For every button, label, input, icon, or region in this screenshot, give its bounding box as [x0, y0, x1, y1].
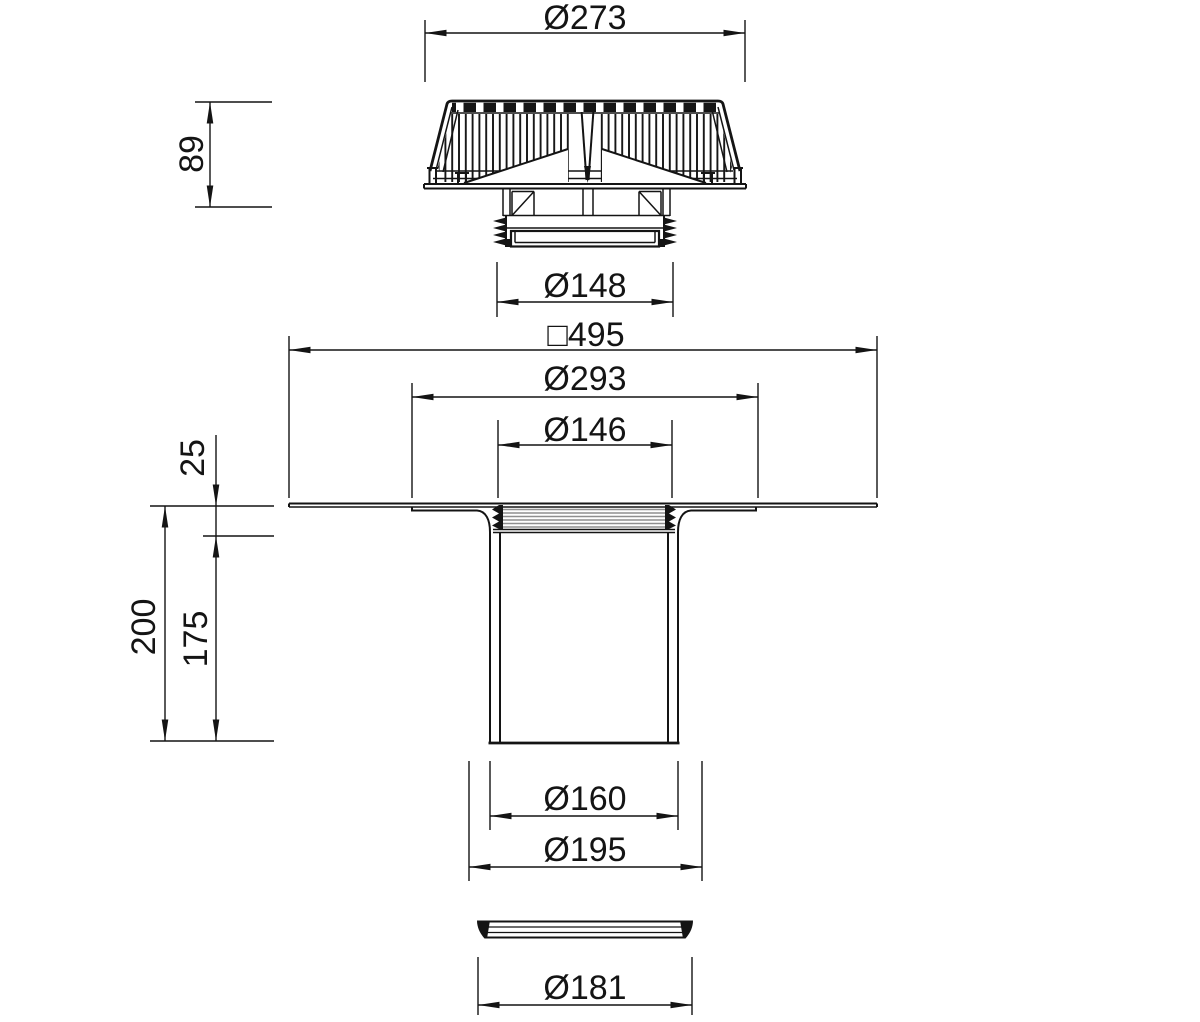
dim-label-grate-diameter: Ø273 — [543, 0, 626, 37]
dim-label-collar-diameter: Ø195 — [543, 831, 626, 869]
strainer-thread-connector — [493, 216, 677, 247]
dim-label-throat-diameter: Ø146 — [543, 411, 626, 449]
dimension-flange-height: 25 — [150, 435, 274, 536]
dim-label-seal-diameter: Ø181 — [543, 969, 626, 1007]
drain-body-section-view: □495 Ø293 Ø146 25 200 — [125, 316, 877, 1015]
dim-label-recess-diameter: Ø293 — [543, 360, 626, 398]
strainer-neck — [503, 189, 670, 217]
seal-ring-drawing — [477, 921, 693, 939]
dimension-thread-diameter: Ø148 — [497, 262, 673, 317]
dimension-grate-height: 89 — [173, 102, 272, 207]
dim-label-total-depth: 200 — [125, 599, 163, 656]
roof-drain-technical-drawing: Ø273 89 — [0, 0, 1200, 1022]
dim-label-flange-square: □495 — [547, 316, 624, 354]
strainer-drawing — [424, 101, 746, 247]
dimension-collar-diameter: Ø195 — [469, 761, 702, 881]
dimension-seal-diameter: Ø181 — [478, 957, 692, 1015]
drain-body-drawing — [289, 504, 877, 744]
dimension-spigot-depth: 175 — [177, 536, 216, 741]
dim-label-spigot-depth: 175 — [177, 611, 215, 668]
dim-label-thread-diameter: Ø148 — [543, 267, 626, 305]
dim-label-grate-height: 89 — [173, 135, 211, 173]
dimension-pipe-diameter: Ø160 — [490, 761, 678, 830]
grate-slot-band — [452, 103, 718, 112]
throat-thread-band — [492, 505, 676, 533]
dim-label-pipe-diameter: Ø160 — [543, 780, 626, 818]
dimension-throat-diameter: Ø146 — [498, 411, 672, 498]
dimension-grate-diameter: Ø273 — [425, 0, 745, 82]
dim-label-flange-height: 25 — [174, 439, 212, 477]
technical-drawing-page: Ø273 89 — [0, 0, 1200, 1022]
strainer-side-view: Ø273 89 — [173, 0, 746, 317]
strainer-base-plate — [424, 184, 746, 189]
dimension-flange-square: □495 — [289, 316, 877, 498]
